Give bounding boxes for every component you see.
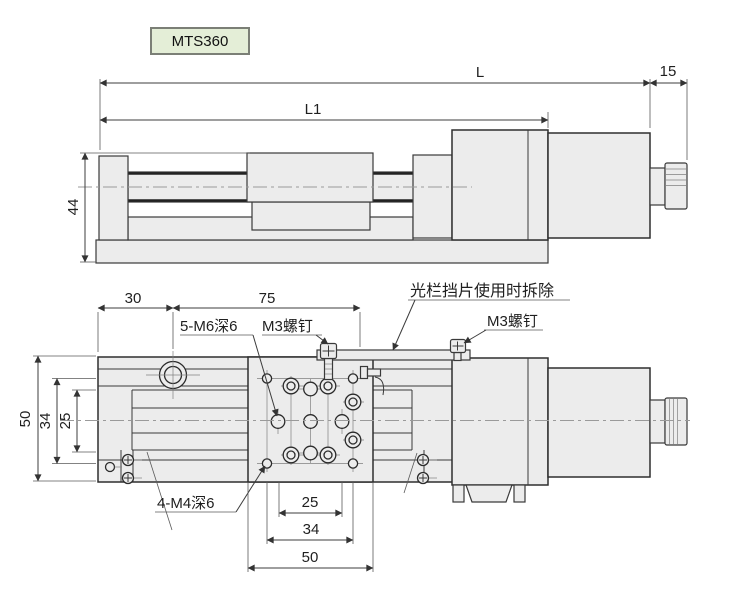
carriage-lower-side bbox=[252, 202, 370, 230]
shutter-strip bbox=[317, 350, 470, 360]
motor-body-plan bbox=[548, 368, 650, 477]
connector-stem-plan bbox=[650, 400, 665, 443]
coupling-housing-side bbox=[452, 130, 548, 240]
leader-m3-left bbox=[316, 335, 328, 344]
dim-75-label: 75 bbox=[259, 290, 276, 307]
leader-m3-right bbox=[464, 330, 486, 343]
connector-knob-side bbox=[665, 163, 687, 209]
base-plate-side bbox=[96, 240, 548, 263]
drawing-canvas: MTS360 bbox=[0, 0, 733, 605]
dim-25-left-label: 25 bbox=[57, 413, 74, 430]
dim-34-left-label: 34 bbox=[37, 413, 54, 430]
shutter-note-label: 光栏挡片使用时拆除 bbox=[410, 282, 554, 300]
m6-holes-label: 5-M6深6 bbox=[180, 318, 238, 335]
dim-25-bottom-label: 25 bbox=[302, 494, 319, 511]
plan-left-dimensions: 50 34 25 bbox=[17, 356, 96, 481]
m3-screw-right-label: M3螺钉 bbox=[487, 313, 538, 330]
dsub-connector bbox=[453, 485, 525, 502]
dim-30-label: 30 bbox=[125, 290, 142, 307]
m4-holes-label: 4-M4深6 bbox=[157, 495, 215, 512]
leader-shutter bbox=[393, 300, 415, 350]
connector-knob-plan bbox=[665, 398, 687, 445]
dim-44-label: 44 bbox=[65, 199, 82, 216]
motor-body-side bbox=[548, 133, 650, 238]
m3-screw-left-label: M3螺钉 bbox=[262, 318, 313, 335]
dim-50-bottom-label: 50 bbox=[302, 549, 319, 566]
coupling-housing-plan bbox=[452, 358, 548, 485]
left-end-block-side bbox=[99, 156, 128, 240]
dim-L1-label: L1 bbox=[305, 101, 322, 118]
side-view: L 15 L1 44 bbox=[65, 63, 687, 263]
carriage-upper-side bbox=[247, 153, 373, 202]
dim-50-left-label: 50 bbox=[17, 411, 34, 428]
dim-34-bottom-label: 34 bbox=[303, 521, 320, 538]
plan-view: 30 75 5-M6深6 M3螺钉 光栏挡片使用时拆除 M3螺钉 4-M4深6 bbox=[17, 282, 690, 572]
technical-drawing-svg: L 15 L1 44 bbox=[0, 0, 733, 605]
connector-stem-side bbox=[650, 168, 665, 205]
dim-L-label: L bbox=[476, 64, 484, 81]
bearing-block-side bbox=[413, 155, 452, 238]
plan-bottom-dimensions: 25 34 50 bbox=[248, 482, 373, 572]
dim-15-label: 15 bbox=[660, 63, 677, 80]
